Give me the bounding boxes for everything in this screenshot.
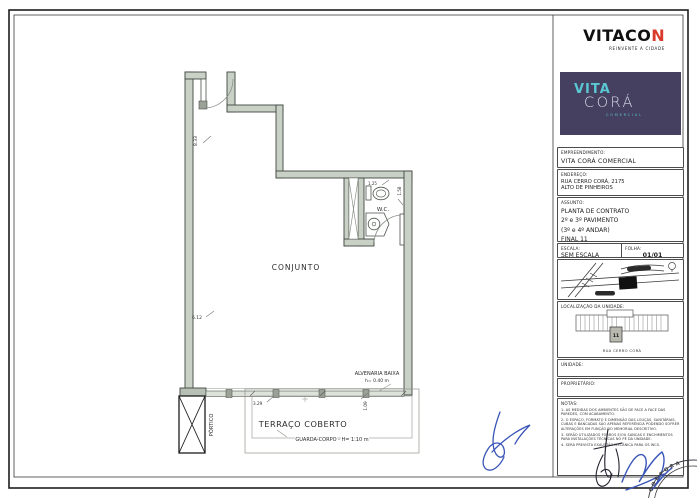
endereco-line2: ALTO DE PINHEIROS	[561, 185, 680, 191]
brand-line2: CORÁ	[584, 96, 681, 111]
ventilation-shaft	[349, 178, 358, 239]
lobby-bump	[607, 310, 633, 317]
assunto-label: ASSUNTO:	[561, 200, 680, 205]
notas-label: NOTAS:	[561, 401, 680, 406]
svg-text:1.25: 1.25	[368, 181, 377, 186]
svg-text:1.58: 1.58	[397, 186, 402, 195]
endereco-label: ENDEREÇO:	[561, 172, 680, 177]
brand-line3: COMERCIAL	[606, 113, 681, 117]
field-notas: NOTAS: 1- AS MEDIDAS DOS AMBIENTES SÃO D…	[557, 398, 684, 476]
assunto-line1: PLANTA DE CONTRATO	[561, 207, 680, 217]
nota-2: 2- O ESPAÇO, FORMATO E DIMENSÃO DAS LOUÇ…	[561, 418, 680, 431]
site-map-drawing	[559, 261, 682, 298]
toilet-icon	[366, 186, 389, 200]
svg-text:8.33: 8.33	[193, 136, 199, 146]
empreendimento-value: VITA CORÁ COMERCIAL	[561, 158, 680, 165]
street-name-capsule-2	[595, 291, 615, 296]
folha-label: FOLHA:	[625, 246, 680, 251]
site-map	[557, 259, 684, 300]
nota-4: 4- SERÁ PREVISTA EXAUSTÃO MECÂNICA PARA …	[561, 443, 680, 447]
field-empreendimento: EMPREENDIMENTO: VITA CORÁ COMERCIAL	[557, 147, 684, 168]
portico-column	[179, 396, 205, 453]
endereco-line1: RUA CERRO CORÁ, 2175	[561, 179, 680, 185]
vita-cora-logo: VITA CORÁ COMERCIAL	[560, 72, 681, 135]
escala-cell: ESCALA: SEM ESCALA	[558, 244, 622, 257]
site-marker	[619, 276, 638, 289]
unidade-label: UNIDADE:	[561, 362, 680, 367]
terrace-label: TERRAÇO COBERTO	[258, 419, 347, 429]
field-escala-folha: ESCALA: SEM ESCALA FOLHA: 01/01	[557, 243, 684, 258]
empreendimento-label: EMPREENDIMENTO:	[561, 150, 680, 155]
map-pin-icon	[669, 263, 676, 270]
assunto-line3: (3º e 4º ANDAR)	[561, 226, 680, 236]
nota-3: 3- SERÃO UTILIZADOS FORROS E/OU SANCAS E…	[561, 433, 680, 442]
unit-locator: LOCALIZAÇÃO DA UNIDADE: 11 RUA CERRO COR…	[557, 301, 684, 358]
vitacon-wordmark: VITACON	[560, 26, 682, 45]
unit-number: 11	[613, 333, 619, 339]
low-wall-label: ALVENARIA BAIXA	[355, 371, 400, 377]
vitacon-logo: VITACON REINVENTE A CIDADE	[560, 26, 682, 70]
nota-1: 1- AS MEDIDAS DOS AMBIENTES SÃO DE FACE …	[561, 408, 680, 417]
low-wall-height-label: h= 0.40 m	[365, 378, 389, 384]
vitacon-tagline: REINVENTE A CIDADE	[560, 46, 682, 51]
folha-cell: FOLHA: 01/01	[622, 244, 683, 257]
folha-value: 01/01	[625, 252, 680, 259]
field-proprietario: PROPRIETÁRIO:	[557, 378, 684, 397]
assunto-line2: 2º e 3º PAVIMENTO	[561, 216, 680, 226]
proprietario-label: PROPRIETÁRIO:	[561, 381, 680, 386]
wc-label: W.C.	[377, 207, 389, 213]
field-assunto: ASSUNTO: PLANTA DE CONTRATO 2º e 3º PAVI…	[557, 197, 684, 242]
svg-text:3.29: 3.29	[253, 401, 263, 406]
svg-text:1.09: 1.09	[363, 401, 368, 411]
portico-label: PÓRTICO	[208, 414, 215, 437]
field-endereco: ENDEREÇO: RUA CERRO CORÁ, 2175 ALTO DE P…	[557, 169, 684, 196]
escala-value: SEM ESCALA	[561, 252, 618, 259]
drawing-sheet: CONJUNTO W.C. TERRAÇO COBERTO GUARDA-COR…	[0, 0, 697, 498]
sink-icon	[366, 213, 389, 236]
room-label: CONJUNTO	[272, 263, 321, 272]
street-label: RUA CERRO CORÁ	[603, 348, 642, 353]
svg-text:6.12: 6.12	[192, 315, 202, 321]
field-unidade: UNIDADE:	[557, 359, 684, 377]
building-key-plan: 11 RUA CERRO CORÁ	[561, 309, 682, 356]
guardrail-label: GUARDA-CORPO - H= 1.10 m	[295, 437, 368, 443]
escala-label: ESCALA:	[561, 246, 618, 251]
